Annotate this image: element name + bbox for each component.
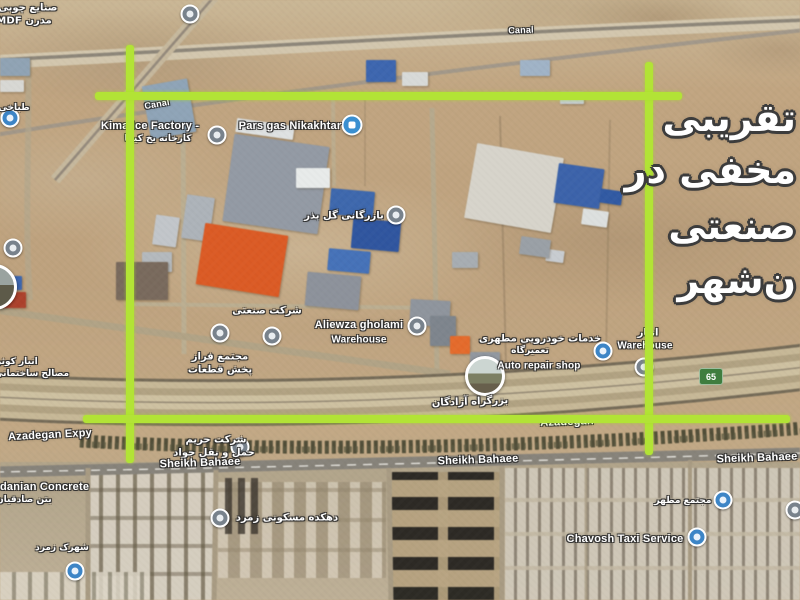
blue-map-pin[interactable] [688,528,707,547]
bottom-horizontal-line [83,415,790,423]
map-label: تعمیرگاه [511,346,549,356]
map-label: مجتمع مطهر [655,496,712,506]
map-label: Pars gas Nikakhtar [239,120,342,132]
map-label: مصالح ساختمانی [0,369,69,379]
gas-map-pin[interactable] [342,115,363,136]
map-label: danian Concrete [0,481,89,493]
top-horizontal-line [95,92,682,100]
map-label: خدمات خودرویی مطهری [479,334,601,345]
gray-map-pin[interactable] [208,126,227,145]
map-label: شهرک زمرد [35,543,89,553]
map-label: پخش قطعات [188,365,252,376]
map-label: شرکت صنعتی [232,306,302,317]
right-vertical-line [645,62,653,455]
map-label: بازرگانی گل بذر [304,211,383,222]
gray-map-pin[interactable] [211,324,230,343]
gray-map-pin[interactable] [211,509,230,528]
gray-map-pin[interactable] [786,501,800,520]
map-label: Aliewza gholami [315,319,404,331]
map-label: شرکت حریم [186,435,247,446]
route-65-shield: 65 [699,368,723,385]
blue-map-pin[interactable] [714,491,733,510]
left-vertical-line [126,45,134,463]
map-label: مدرن MDF [0,16,52,27]
map-label: انبار کوثر [0,357,38,367]
gray-map-pin[interactable] [181,5,200,24]
blue-map-pin[interactable] [66,562,85,581]
gray-map-pin[interactable] [4,239,23,258]
map-label: Chavosh Taxi Service [567,533,684,545]
map-label: طباخی [0,103,30,113]
map-label: Warehouse [331,335,386,346]
gray-map-pin[interactable] [408,317,427,336]
gray-map-pin[interactable] [263,327,282,346]
map-label: صنایع چوبی [0,3,57,14]
map-label: دهکده مسکونی زمرد [236,513,338,524]
annotation-lines-layer [0,0,800,600]
map-label: مجتمع فراز [192,352,248,363]
map-label: کارخانه یخ کیما [125,134,192,144]
map-label: Kima Ice Factory - [101,120,199,132]
satellite-map[interactable]: صنایع چوبیمدرن MDFطباخیCanalCanalKima Ic… [0,0,800,600]
map-label: Auto repair shop [497,361,580,372]
map-label: Canal [508,25,534,36]
map-label: بتن صادقیان [0,495,52,505]
gray-map-pin[interactable] [387,206,406,225]
